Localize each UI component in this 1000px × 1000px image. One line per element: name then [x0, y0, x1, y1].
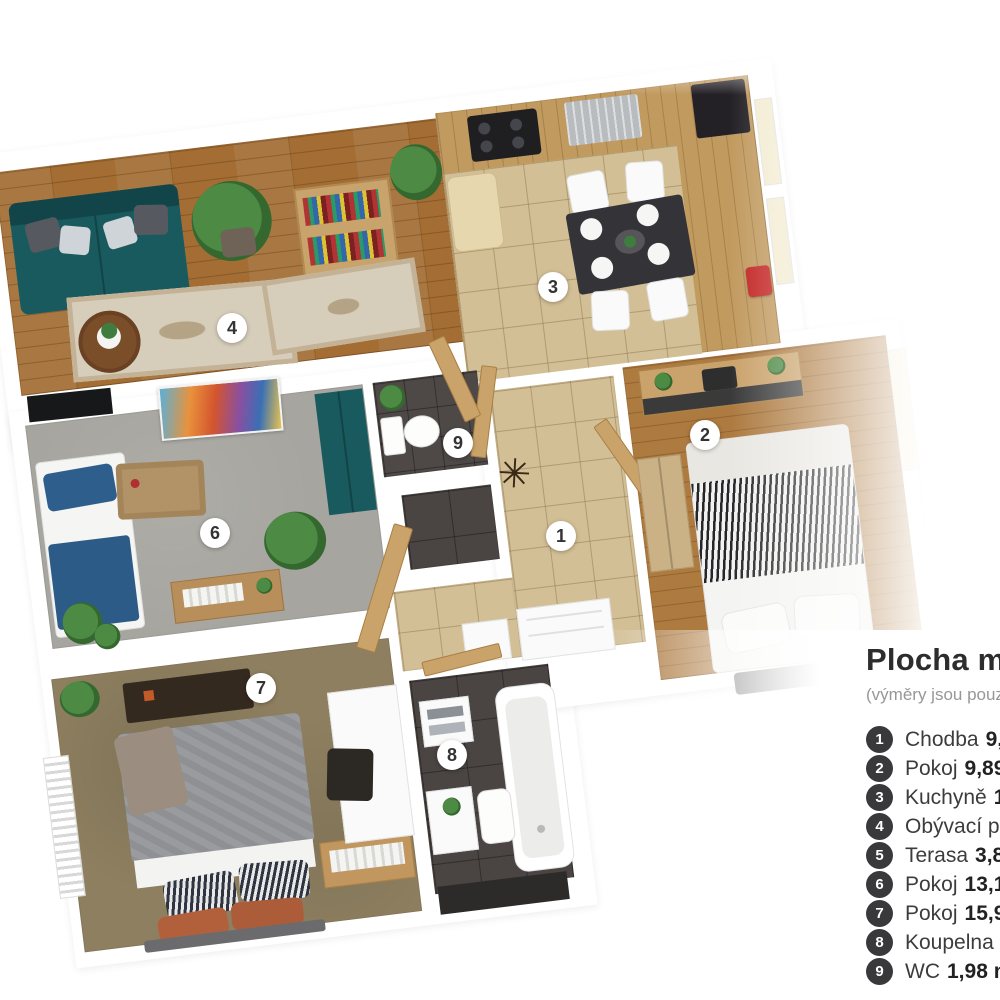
legend-items: 1 Chodba 9, 2 Pokoj 9,89 3 Kuchyně 1 4 O… — [866, 725, 1000, 986]
table-centerpiece — [613, 227, 647, 256]
washbasin — [476, 787, 516, 845]
jute-rug — [116, 459, 207, 520]
legend-title: Plocha m — [866, 642, 1000, 678]
legend-room-name: Koupelna — [905, 931, 994, 955]
towel-shelf — [419, 696, 474, 748]
room-badge-8: 8 — [437, 740, 467, 770]
legend-room-area: 1 — [994, 786, 1000, 810]
room-badge-7: 7 — [246, 673, 276, 703]
city-painting — [157, 377, 283, 441]
floor-kitchen — [435, 75, 781, 381]
bed-pillow — [793, 593, 861, 638]
book-stack — [182, 582, 244, 607]
dining-chair — [590, 290, 630, 332]
legend-row: 4 Obývací po — [866, 812, 1000, 841]
room-badge-4: 4 — [217, 313, 247, 343]
room-badge-9: 9 — [443, 428, 473, 458]
kitchen-sink — [564, 94, 643, 147]
floorplan-page: { "legend": { "title": "Plocha m", "subt… — [0, 0, 1000, 1000]
bed — [685, 423, 876, 673]
room-badge-6: 6 — [200, 518, 230, 548]
sofa-pillow — [134, 205, 169, 236]
desk-chair — [327, 748, 374, 801]
legend-number-badge: 1 — [866, 726, 893, 753]
legend-number-badge: 4 — [866, 813, 893, 840]
legend-number-badge: 9 — [866, 958, 893, 985]
legend-room-name: Pokoj — [905, 902, 958, 926]
legend-row: 9 WC 1,98 m — [866, 957, 1000, 986]
legend-room-name: Kuchyně — [905, 786, 987, 810]
legend-room-name: Chodba — [905, 728, 979, 752]
striped-blanket — [691, 464, 864, 583]
plant-pot — [220, 226, 257, 258]
legend: Plocha m (výměry jsou pouz 1 Chodba 9, 2… — [866, 642, 1000, 986]
legend-row: 2 Pokoj 9,89 — [866, 754, 1000, 783]
legend-room-name: Pokoj — [905, 757, 958, 781]
room-badge-1: 1 — [546, 521, 576, 551]
legend-room-area: 9,89 — [965, 757, 1000, 781]
red-mixer — [745, 265, 772, 298]
desk-tray — [701, 366, 737, 392]
legend-number-badge: 6 — [866, 871, 893, 898]
bath-cabinet — [426, 786, 479, 855]
blue-pillow — [42, 463, 118, 513]
room-badge-3: 3 — [538, 272, 568, 302]
legend-room-area: 15,9 — [965, 902, 1000, 926]
dining-chair — [645, 276, 689, 322]
coat-rack: ✳ — [497, 454, 533, 496]
legend-row: 3 Kuchyně 1 — [866, 783, 1000, 812]
legend-number-badge: 3 — [866, 784, 893, 811]
floorplan-render: ✳ — [0, 0, 1000, 993]
legend-row: 6 Pokoj 13,1 — [866, 870, 1000, 899]
cooktop — [467, 108, 542, 162]
legend-row: 1 Chodba 9, — [866, 725, 1000, 754]
legend-number-badge: 2 — [866, 755, 893, 782]
throw-blanket — [113, 725, 189, 816]
legend-room-name: Pokoj — [905, 873, 958, 897]
dining-chair — [625, 160, 666, 203]
legend-number-badge: 8 — [866, 929, 893, 956]
toilet-tank — [380, 416, 406, 456]
fridge — [446, 171, 505, 253]
legend-room-name: WC — [905, 960, 940, 984]
legend-room-name: Obývací po — [905, 815, 1000, 839]
room-badge-2: 2 — [690, 420, 720, 450]
oven — [691, 78, 751, 138]
legend-room-area: 3,8 — [975, 844, 1000, 868]
legend-row: 7 Pokoj 15,9 — [866, 899, 1000, 928]
legend-row: 5 Terasa 3,8 — [866, 841, 1000, 870]
sofa-pillow — [59, 225, 91, 256]
legend-number-badge: 5 — [866, 842, 893, 869]
legend-room-area: 9, — [986, 728, 1000, 752]
striped-pillow — [238, 859, 310, 902]
legend-row: 8 Koupelna — [866, 928, 1000, 957]
legend-subtitle: (výměry jsou pouz — [866, 685, 1000, 705]
legend-room-name: Terasa — [905, 844, 968, 868]
legend-room-area: 13,1 — [965, 873, 1000, 897]
legend-number-badge: 7 — [866, 900, 893, 927]
legend-room-area: 1,98 m — [947, 960, 1000, 984]
floor-closet — [401, 484, 499, 569]
bed-pillow — [720, 601, 793, 656]
